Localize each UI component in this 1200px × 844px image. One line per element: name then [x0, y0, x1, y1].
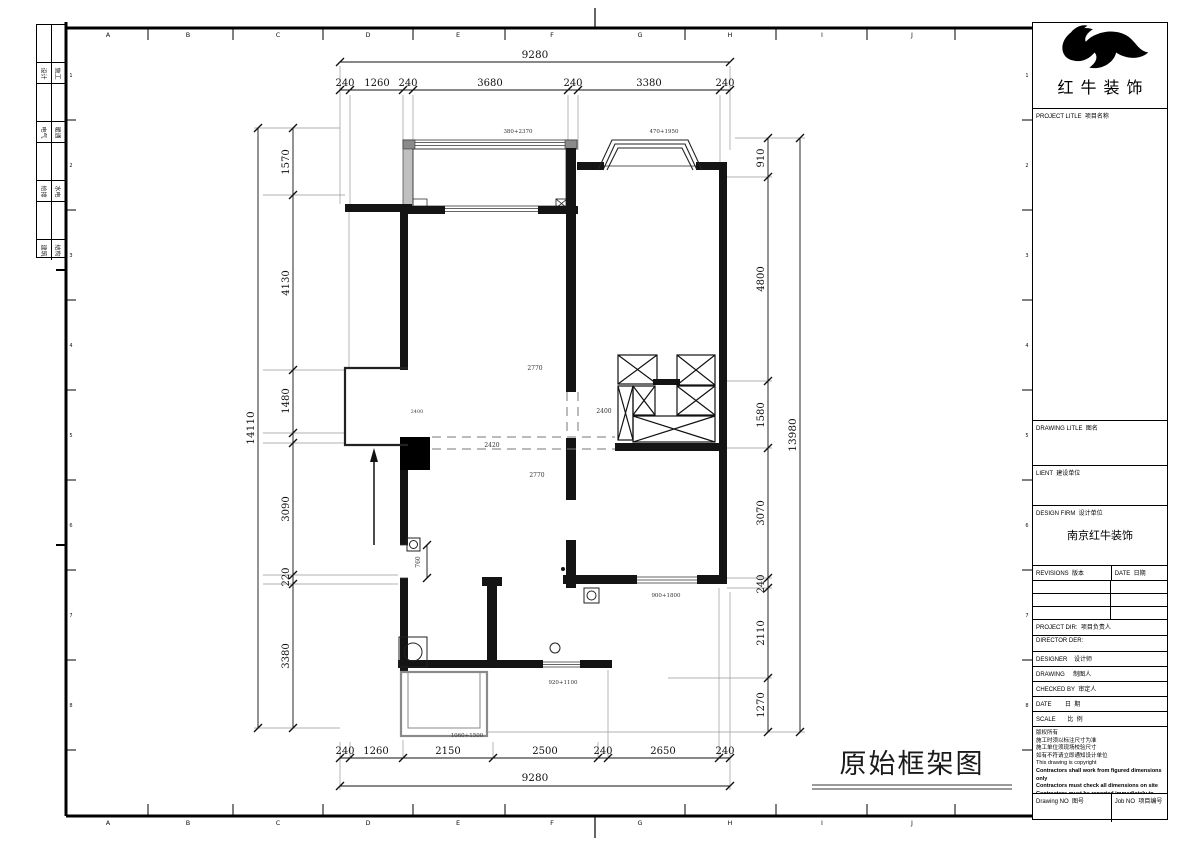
- signoff-cell: 设计: [37, 63, 51, 83]
- dims-bottom: 9280 240 1260 2150 2500 240 2650 240: [335, 746, 734, 784]
- room-label: 2420: [484, 442, 499, 449]
- grid-letter: C: [276, 819, 281, 827]
- window-label: 470+1950: [649, 129, 679, 135]
- drawing-no-label: Drawing NO 图号: [1033, 794, 1111, 805]
- signoff-label: 设计: [39, 67, 48, 79]
- grid-number: 8: [1025, 703, 1028, 709]
- grid-number: 7: [1025, 613, 1028, 619]
- dim-text: 240: [335, 78, 354, 89]
- room-label: 2770: [529, 472, 544, 479]
- signoff-cell: 结构: [51, 240, 65, 260]
- dim-text: 3070: [756, 500, 767, 525]
- room-label: 2400: [596, 408, 611, 415]
- design-firm-label: DESIGN FIRM 设计单位: [1033, 506, 1167, 517]
- dim-text: 1580: [756, 402, 767, 427]
- window-labels: 380+2370 470+1950 900+1800 920+1100 1060…: [451, 129, 681, 739]
- entry-alcove: [345, 368, 408, 445]
- dim-text: 1270: [756, 692, 767, 717]
- grid-letter: C: [276, 31, 281, 39]
- grid-letter: J: [910, 31, 913, 39]
- drawing-title-text: 原始框架图: [812, 742, 1012, 781]
- beam-dashed-lines: [432, 392, 615, 449]
- dim-text: 14110: [245, 411, 257, 444]
- grid-number: 1: [1025, 73, 1028, 79]
- grid-letter: A: [106, 31, 111, 39]
- drawing-title: 原始框架图: [812, 742, 1012, 790]
- window-label: 380+2370: [503, 129, 533, 135]
- signoff-cell: 施工: [51, 63, 65, 83]
- floor-plan: 2770 2400 2420 2400 2770 760 380+2370 47…: [345, 129, 727, 739]
- window-label: 900+1800: [651, 593, 681, 599]
- grid-letter: G: [637, 819, 642, 827]
- drawing-title-label: DRAWING LITLE 图名: [1033, 421, 1167, 432]
- dims-top: 9280 240 1260 240 3680 240 3380 240: [335, 49, 734, 89]
- window-label: 920+1100: [548, 680, 578, 686]
- client-label: LIENT 建设单位: [1033, 466, 1167, 477]
- signoff-cell: 暖通: [51, 122, 65, 142]
- dim-text: 240: [593, 746, 612, 757]
- title-block: 红牛装饰 PROJECT LITLE 项目名称 DRAWING LITLE 图名…: [1032, 22, 1168, 820]
- drawing-by-label: DRAWING 制图人: [1033, 667, 1167, 678]
- checked-by-row: CHECKED BY 审定人: [1033, 682, 1167, 697]
- dim-text: 2110: [756, 620, 767, 645]
- grid-letter: D: [365, 819, 370, 827]
- note-line: 版权所有: [1036, 730, 1165, 738]
- shaft-cluster: [618, 355, 715, 442]
- grid-letter: G: [637, 31, 642, 39]
- company-name: 红牛装饰: [1050, 74, 1149, 98]
- grid-number: 1: [69, 73, 72, 79]
- designer-row: DESIGNER 设计师: [1033, 652, 1167, 667]
- signoff-strip: 设计施工 电气暖通 给排水电 建筑结构: [36, 24, 66, 258]
- grid-letter: E: [456, 31, 460, 39]
- dim-text: 1260: [364, 78, 389, 89]
- director-row: DIRECTOR DER:: [1033, 636, 1167, 652]
- job-no-label: Job NO 项目编号: [1112, 794, 1167, 805]
- dim-text: 1570: [281, 149, 292, 174]
- dim-text: 240: [563, 78, 582, 89]
- grid-letter: I: [821, 31, 823, 39]
- director-label: DIRECTOR DER:: [1033, 636, 1167, 644]
- revisions-header: REVISIONS 版本 DATE 日期: [1033, 566, 1167, 581]
- dim-text: 1260: [363, 746, 388, 757]
- note-line: 施工单位须现场校验尺寸: [1036, 745, 1165, 753]
- signoff-cell: [51, 143, 65, 180]
- dim-text: 13980: [787, 418, 799, 451]
- notes-section: 版权所有 施工时须以标注尺寸为准 施工单位须现场校验尺寸 如有不符请立即通知设计…: [1033, 727, 1167, 794]
- signoff-label: 水电: [54, 185, 63, 197]
- date-row: DATE 日 期: [1033, 697, 1167, 712]
- signoff-cell: [37, 202, 51, 239]
- grid-letter: I: [821, 819, 823, 827]
- revision-row: [1033, 581, 1167, 594]
- grid-letter: A: [106, 819, 111, 827]
- floor-drain: [550, 643, 560, 653]
- dims-right: 13980 910 4800 1580 3070 240 2110 1270: [756, 148, 799, 717]
- grid-letter: J: [910, 819, 913, 827]
- grid-letter: F: [550, 819, 554, 827]
- signoff-cell: [51, 84, 65, 121]
- grid-letter: H: [728, 31, 733, 39]
- revision-row: [1033, 607, 1167, 620]
- entry-arrow: [370, 448, 378, 545]
- designer-label: DESIGNER 设计师: [1033, 652, 1167, 663]
- checked-by-label: CHECKED BY 审定人: [1033, 682, 1167, 693]
- point-mark: [561, 567, 565, 571]
- room-label: 2770: [527, 365, 542, 372]
- sheet-frame: [56, 8, 1032, 838]
- dims-left: 14110 1570 4130 1480 3090 220 3380: [245, 149, 292, 668]
- grid-letters-bottom: A B C D E F G H I J: [106, 819, 913, 827]
- window: [637, 577, 697, 583]
- grid-number: 8: [69, 703, 72, 709]
- signoff-cell: 水电: [51, 181, 65, 201]
- sliding-door-sill: [445, 209, 538, 212]
- grid-letter: D: [365, 31, 370, 39]
- scale-row: SCALE 比 例: [1033, 712, 1167, 727]
- title-underline: [812, 788, 1012, 790]
- dim-text: 3380: [281, 643, 292, 668]
- signoff-label: 施工: [54, 67, 63, 79]
- pipe-box: [584, 588, 599, 603]
- window-label: 1060+1500: [451, 733, 484, 739]
- client-section: LIENT 建设单位: [1033, 466, 1167, 506]
- signoff-cell: [51, 202, 65, 239]
- signoff-label: 暖通: [54, 126, 63, 138]
- grid-number: 7: [69, 613, 72, 619]
- signoff-label: 电气: [39, 126, 48, 138]
- dim-text: 3090: [281, 496, 292, 521]
- grid-number: 3: [69, 253, 72, 259]
- grid-letter: E: [456, 819, 460, 827]
- signoff-cell: [37, 143, 51, 180]
- date-col-label: DATE 日期: [1112, 566, 1167, 577]
- project-dir-label: PROJECT DIR: 项目负责人: [1033, 620, 1167, 631]
- dim-text: 2650: [650, 746, 675, 757]
- signoff-cell: [37, 84, 51, 121]
- pipe-box: [407, 538, 420, 551]
- cad-canvas: A B C D E F G H I J A B C D E F G H I J …: [0, 0, 1200, 844]
- grid-number: 5: [69, 433, 72, 439]
- dim-text: 910: [756, 148, 767, 167]
- signoff-cell: [51, 25, 65, 62]
- note-line: This drawing is copyright: [1036, 760, 1165, 768]
- revision-row: [1033, 594, 1167, 607]
- grid-number: 5: [1025, 433, 1028, 439]
- grid-number: 6: [1025, 523, 1028, 529]
- drawing-sheet: A B C D E F G H I J A B C D E F G H I J …: [0, 0, 1200, 844]
- dim-text: 2150: [435, 746, 460, 757]
- dim-text: 4130: [281, 270, 292, 295]
- grid-letter: B: [186, 31, 190, 39]
- number-row: Drawing NO 图号 Job NO 项目编号: [1033, 794, 1167, 822]
- grid-number: 2: [69, 163, 72, 169]
- project-title-label: PROJECT LITLE 项目名称: [1033, 109, 1167, 120]
- grid-letter: H: [728, 819, 733, 827]
- dim-text: 240: [398, 78, 417, 89]
- grid-numbers-right: 1 2 3 4 5 6 7 8: [1025, 73, 1028, 709]
- signoff-label: 建筑: [39, 244, 48, 256]
- grid-number: 4: [69, 343, 72, 349]
- dim-text: 9280: [522, 49, 549, 61]
- dim-text: 3380: [636, 78, 661, 89]
- logo-section: 红牛装饰: [1033, 23, 1167, 109]
- room-label: 2400: [411, 409, 424, 415]
- dim-text: 240: [715, 78, 734, 89]
- drawing-title-section: DRAWING LITLE 图名: [1033, 421, 1167, 466]
- dim-text: 2500: [532, 746, 557, 757]
- dim-text: 4800: [756, 266, 767, 291]
- dim-text: 3680: [477, 78, 502, 89]
- note-line: 如有不符请立即通知设计单位: [1036, 753, 1165, 761]
- balcony-bottom: [401, 672, 487, 736]
- grid-letter: F: [550, 31, 554, 39]
- drawing-by-row: DRAWING 制图人: [1033, 667, 1167, 682]
- column: [400, 437, 430, 470]
- dim-text: 240: [756, 574, 767, 593]
- grid-number: 6: [69, 523, 72, 529]
- note-line: Contractors must be reported immediately…: [1036, 791, 1165, 794]
- grid-letter: B: [186, 819, 190, 827]
- dim-text: 240: [715, 746, 734, 757]
- revisions-label: REVISIONS 版本: [1033, 566, 1111, 577]
- note-line: Contractors must check all dimensions on…: [1036, 783, 1165, 791]
- dim-text: 9280: [522, 772, 549, 784]
- window: [543, 662, 580, 667]
- scale-label: SCALE 比 例: [1033, 712, 1167, 723]
- grid-number: 2: [1025, 163, 1028, 169]
- grid-letters-top: A B C D E F G H I J: [106, 31, 913, 39]
- signoff-cell: 建筑: [37, 240, 51, 260]
- design-firm-section: DESIGN FIRM 设计单位 南京红牛装饰: [1033, 506, 1167, 566]
- bull-logo-icon: [1046, 23, 1154, 73]
- dim-text: 240: [335, 746, 354, 757]
- project-dir-row: PROJECT DIR: 项目负责人: [1033, 620, 1167, 636]
- date-label: DATE 日 期: [1033, 697, 1167, 708]
- signoff-cell: [37, 25, 51, 62]
- signoff-cell: 给排: [37, 181, 51, 201]
- balcony-top-left: [403, 140, 577, 208]
- room-labels: 2770 2400 2420 2400 2770 760: [411, 365, 612, 568]
- dim-text: 1480: [281, 388, 292, 413]
- grid-number: 3: [1025, 253, 1028, 259]
- room-label: 760: [415, 556, 422, 568]
- project-title-section: PROJECT LITLE 项目名称: [1033, 109, 1167, 421]
- grid-numbers-left: 1 2 3 4 5 6 7 8: [69, 73, 72, 709]
- design-firm-value: 南京红牛装饰: [1033, 527, 1167, 543]
- signoff-cell: 电气: [37, 122, 51, 142]
- note-line: Contractors shall work from figured dime…: [1036, 768, 1165, 783]
- signoff-label: 给排: [39, 185, 48, 197]
- bay-window: [598, 140, 702, 170]
- grid-number: 4: [1025, 343, 1028, 349]
- title-underline: [812, 784, 1012, 786]
- signoff-label: 结构: [54, 244, 63, 256]
- dim-text: 220: [281, 567, 292, 586]
